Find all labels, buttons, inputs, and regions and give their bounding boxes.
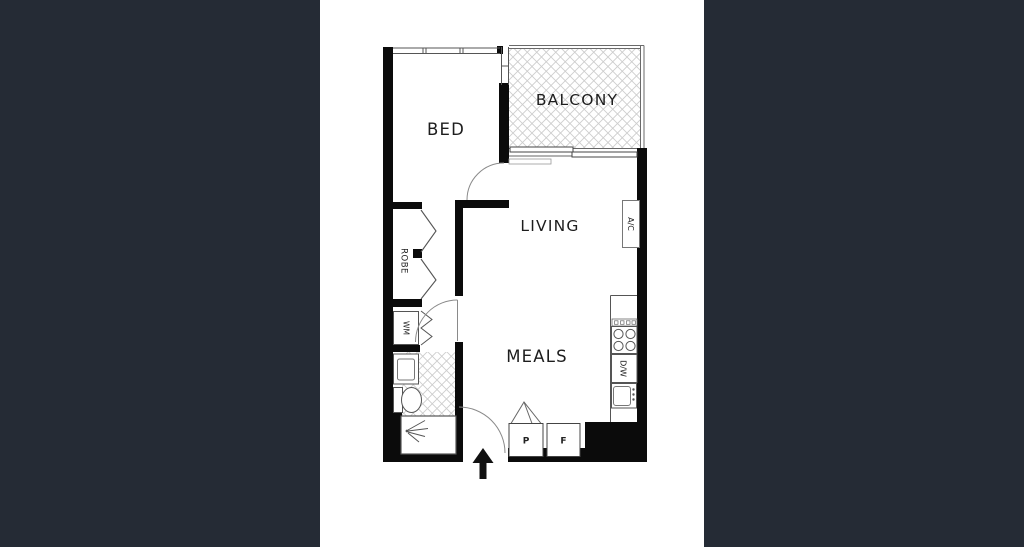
wall-west: [383, 47, 393, 462]
pantry-open-door: [511, 402, 541, 424]
wall-bed-east: [499, 83, 509, 163]
window-end-post: [497, 46, 503, 54]
dishwasher-label: D/W: [619, 360, 628, 377]
dishwasher: D/W: [612, 355, 638, 383]
robe-bifold-doors: [421, 210, 436, 299]
wall-living-west: [455, 200, 463, 296]
robe-door-stop: [413, 249, 422, 258]
air-conditioner-label: A/C: [626, 217, 635, 231]
cooktop: [612, 319, 638, 354]
entry-door-swing: [459, 407, 505, 453]
vanity-sink: [394, 354, 419, 384]
bed-room-label: BED: [427, 120, 465, 139]
wall-living-north-cap: [455, 200, 509, 208]
floor-plan-page: A/C D/W: [0, 0, 1024, 547]
robe-room-label: ROBE: [399, 248, 409, 274]
kitchen-sink: [612, 384, 637, 409]
balcony-room-label: BALCONY: [536, 91, 618, 109]
left-letterbox-bar: [0, 0, 320, 547]
washing-machine-label: WM: [402, 321, 411, 335]
meals-room-label: MEALS: [506, 347, 568, 366]
bed-door-swing: [467, 163, 504, 200]
pantry-label: P: [523, 437, 530, 447]
right-letterbox-bar: [704, 0, 1024, 547]
wall-east: [637, 148, 647, 462]
laundry-nook: WM: [394, 311, 433, 345]
laundry-bifold-door: [421, 311, 432, 345]
bed-north-window: [393, 48, 500, 54]
balcony-sliding-door: [509, 147, 637, 164]
wall-bed-south: [383, 202, 422, 209]
shower: [401, 416, 456, 454]
toilet: [394, 388, 422, 413]
living-room-label: LIVING: [520, 217, 579, 235]
fridge-label: F: [560, 437, 566, 447]
entry-arrow-icon: [473, 448, 494, 479]
floor-plan-canvas: A/C D/W: [0, 0, 1024, 547]
kitchen: D/W: [611, 296, 638, 423]
air-conditioner-unit: A/C: [623, 201, 640, 248]
wall-robe-south: [383, 299, 422, 307]
wall-wm-bath-divider: [383, 345, 420, 352]
